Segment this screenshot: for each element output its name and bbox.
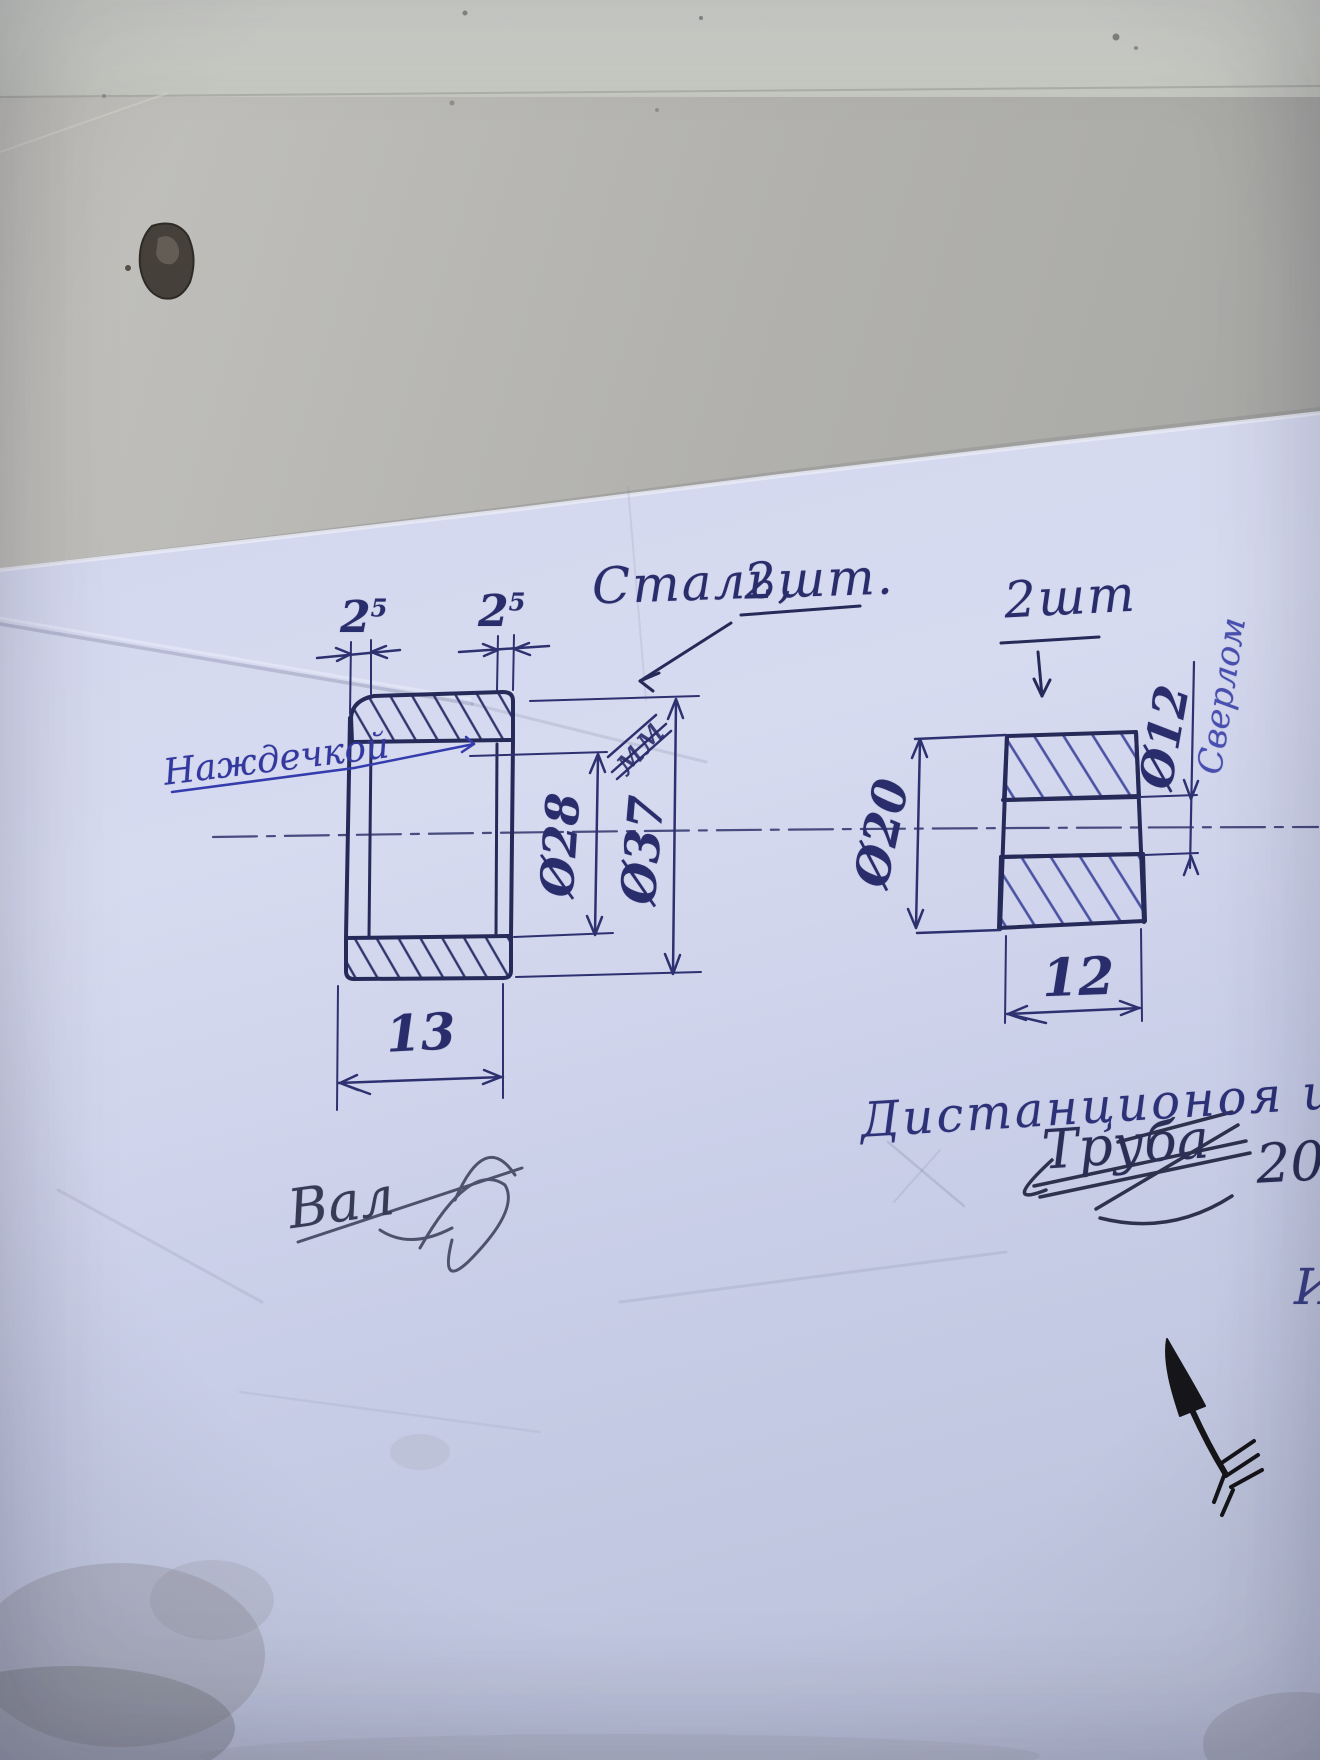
right-lip-dim: 25 [478, 590, 525, 634]
struck-word: Труба [1040, 1112, 1210, 1178]
photo-hand-drawn-sketch: { "photo": { "material_note": { "text": … [0, 0, 1320, 1760]
bore-dia-label: Ø28 [533, 791, 586, 898]
edge-letter: И [1294, 1262, 1320, 1312]
scene: Сталь, 2шт. 25 25 Ø28 Ø37 мм 13 Наждечко… [0, 0, 1320, 1760]
struck-word-left: Вал [285, 1169, 398, 1237]
outer-dia-label: Ø37 [614, 794, 671, 906]
left-lip-dim: 25 [340, 596, 387, 640]
right-lip-value: 2 [478, 586, 509, 637]
left-lip-sup: 5 [371, 593, 388, 622]
washer-width-label: 12 [1041, 951, 1115, 1005]
struck-number: 20 [1255, 1134, 1320, 1192]
material-qty: 2шт. [743, 551, 895, 606]
right-qty-label: 2шт [1003, 569, 1138, 626]
left-lip-value: 2 [340, 592, 371, 643]
left-length-label: 13 [385, 1006, 457, 1060]
right-lip-sup: 5 [509, 587, 526, 616]
